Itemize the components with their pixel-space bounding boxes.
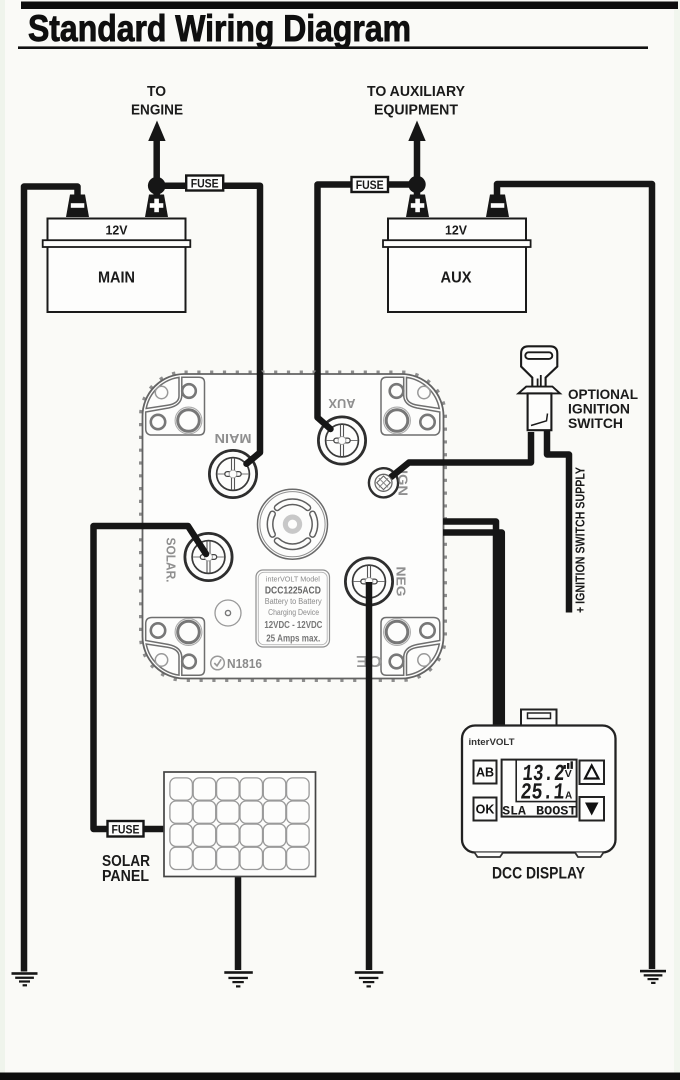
svg-text:Battery to Battery: Battery to Battery (265, 597, 322, 606)
svg-text:12VDC - 12VDC: 12VDC - 12VDC (264, 620, 322, 631)
svg-text:Charging Device: Charging Device (268, 608, 319, 617)
svg-text:MAIN: MAIN (98, 270, 135, 287)
svg-text:BOOST: BOOST (536, 805, 577, 819)
svg-text:25 Amps max.: 25 Amps max. (266, 633, 320, 644)
svg-text:25.1: 25.1 (519, 780, 565, 806)
svg-text:OK: OK (476, 803, 495, 817)
svg-text:V: V (565, 768, 572, 780)
svg-text:PANEL: PANEL (102, 868, 149, 885)
svg-text:+ IGNITION SWITCH SUPPLY: + IGNITION SWITCH SUPPLY (574, 466, 588, 613)
svg-text:AUX: AUX (328, 396, 356, 410)
svg-text:interVOLT: interVOLT (469, 737, 516, 747)
svg-text:FUSE: FUSE (356, 180, 384, 192)
svg-text:TO AUXILIARY: TO AUXILIARY (367, 84, 465, 100)
svg-text:12V: 12V (445, 224, 468, 238)
svg-text:AB: AB (476, 766, 494, 780)
svg-text:FUSE: FUSE (191, 178, 219, 190)
svg-text:ENGINE: ENGINE (131, 103, 183, 119)
svg-text:AUX: AUX (441, 270, 472, 287)
svg-text:DCC DISPLAY: DCC DISPLAY (492, 865, 585, 883)
svg-text:SLA: SLA (502, 805, 526, 819)
svg-text:MAIN: MAIN (215, 431, 252, 445)
svg-text:NEG: NEG (394, 567, 408, 597)
svg-text:A: A (565, 791, 572, 802)
svg-text:interVOLT Model: interVOLT Model (266, 574, 320, 583)
svg-text:12V: 12V (106, 224, 129, 238)
svg-text:SOLAR.: SOLAR. (164, 538, 178, 583)
svg-text:Standard Wiring Diagram: Standard Wiring Diagram (28, 8, 411, 49)
svg-text:TO: TO (147, 84, 166, 100)
svg-text:EQUIPMENT: EQUIPMENT (374, 103, 458, 119)
svg-text:FUSE: FUSE (112, 824, 140, 836)
svg-text:N1816: N1816 (227, 657, 262, 671)
svg-text:DCC1225ACD: DCC1225ACD (265, 586, 321, 597)
svg-text:SWITCH: SWITCH (568, 415, 623, 431)
